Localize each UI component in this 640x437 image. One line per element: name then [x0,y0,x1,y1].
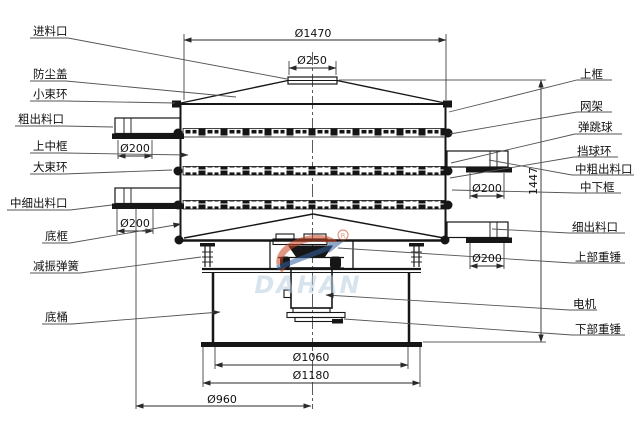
label-upper-middle-frame: 上中框 [33,139,68,153]
leader-upper-middle-frame [30,153,188,155]
logo-arrow-head [328,242,343,253]
leader-small-clamp-ring [30,101,175,103]
label-bottom-frame: 底框 [45,229,68,243]
clamp-ring-dot [174,167,183,176]
registered-mark-letter: R [341,232,346,240]
screen-deck-3 [183,201,446,210]
mid-fine-outlet-duct [112,188,184,209]
dim-text-top-outer: Ø1470 [295,27,332,40]
label-fine-outlet: 细出料口 [572,220,618,234]
screen-deck-1 [183,129,446,138]
leader-base-barrel [42,312,220,324]
bottom-cone-right [313,214,444,238]
leader-coarse-outlet [15,126,113,127]
sieve-section-drawing: R DAHAN [0,0,640,437]
label-mesh-frame: 网架 [580,99,603,113]
clamp-ring-dot [444,201,453,210]
label-feed-inlet: 进料口 [33,24,68,38]
screen-deck-2 [183,167,446,176]
label-damping-spring: 减振弹簧 [33,259,79,273]
rim-dot-right [441,236,450,245]
dim-text-left-lower-outlet: Ø200 [120,217,150,230]
fine-outlet-duct [447,222,512,243]
coarse-outlet-duct [112,118,184,139]
label-mid-lower-frame: 中下框 [580,180,615,194]
lower-eccentric-weight [332,319,343,324]
leader-feed-inlet [30,38,287,79]
dim-text-right-lower-outlet: Ø200 [472,252,502,265]
brand-text: DAHAN [254,271,361,299]
mount-bolt-right [330,257,341,269]
rim-clamp-right [443,101,452,108]
label-motor: 电机 [573,297,596,311]
label-coarse-outlet: 粗出料口 [18,112,64,126]
rim-dot-left [175,236,184,245]
dust-cover-left-slope [181,81,288,104]
label-bouncing-ball: 弹跳球 [578,120,613,134]
dim-text-right-upper-outlet: Ø200 [472,182,502,195]
dim-text-inlet: Ø250 [297,54,327,67]
label-base-barrel: 底桶 [45,310,68,324]
label-ball-stop-ring: 挡球环 [577,144,612,158]
label-upper-frame: 上框 [580,67,603,81]
damping-spring-right [409,243,424,267]
drawing-canvas: R DAHAN [0,0,640,437]
lower-weight-plate [287,313,345,318]
damping-spring-left [200,243,215,267]
label-small-clamp-ring: 小束环 [33,87,68,101]
upper-weight-tab [276,234,294,239]
dim-text-left-upper-outlet: Ø200 [120,142,150,155]
clamp-ring-dot [444,129,453,138]
label-dust-cover: 防尘盖 [33,67,68,81]
dust-cover-right-slope [337,81,445,104]
label-large-clamp-ring: 大束环 [33,160,68,174]
part-labels-right: 上框 网架 弹跳球 挡球环 中粗出料口 中下框 细出料口 上部重锤 电机 下部重… [572,67,633,336]
dim-text-base-barrel: Ø1060 [293,351,330,364]
label-upper-weight: 上部重锤 [575,250,621,264]
leader-motor [326,295,597,310]
label-lower-weight: 下部重锤 [575,322,621,336]
dim-text-spring-circle: Ø960 [207,393,237,406]
label-mid-coarse-outlet: 中粗出料口 [575,162,633,176]
dim-text-base-plate: Ø1180 [293,369,330,382]
dim-text-overall-height: 1447 [527,167,540,195]
label-mid-fine-outlet: 中细出料口 [10,196,68,210]
clamp-ring-dot [444,167,453,176]
machine-structure [112,77,512,347]
base-plate [201,342,422,347]
